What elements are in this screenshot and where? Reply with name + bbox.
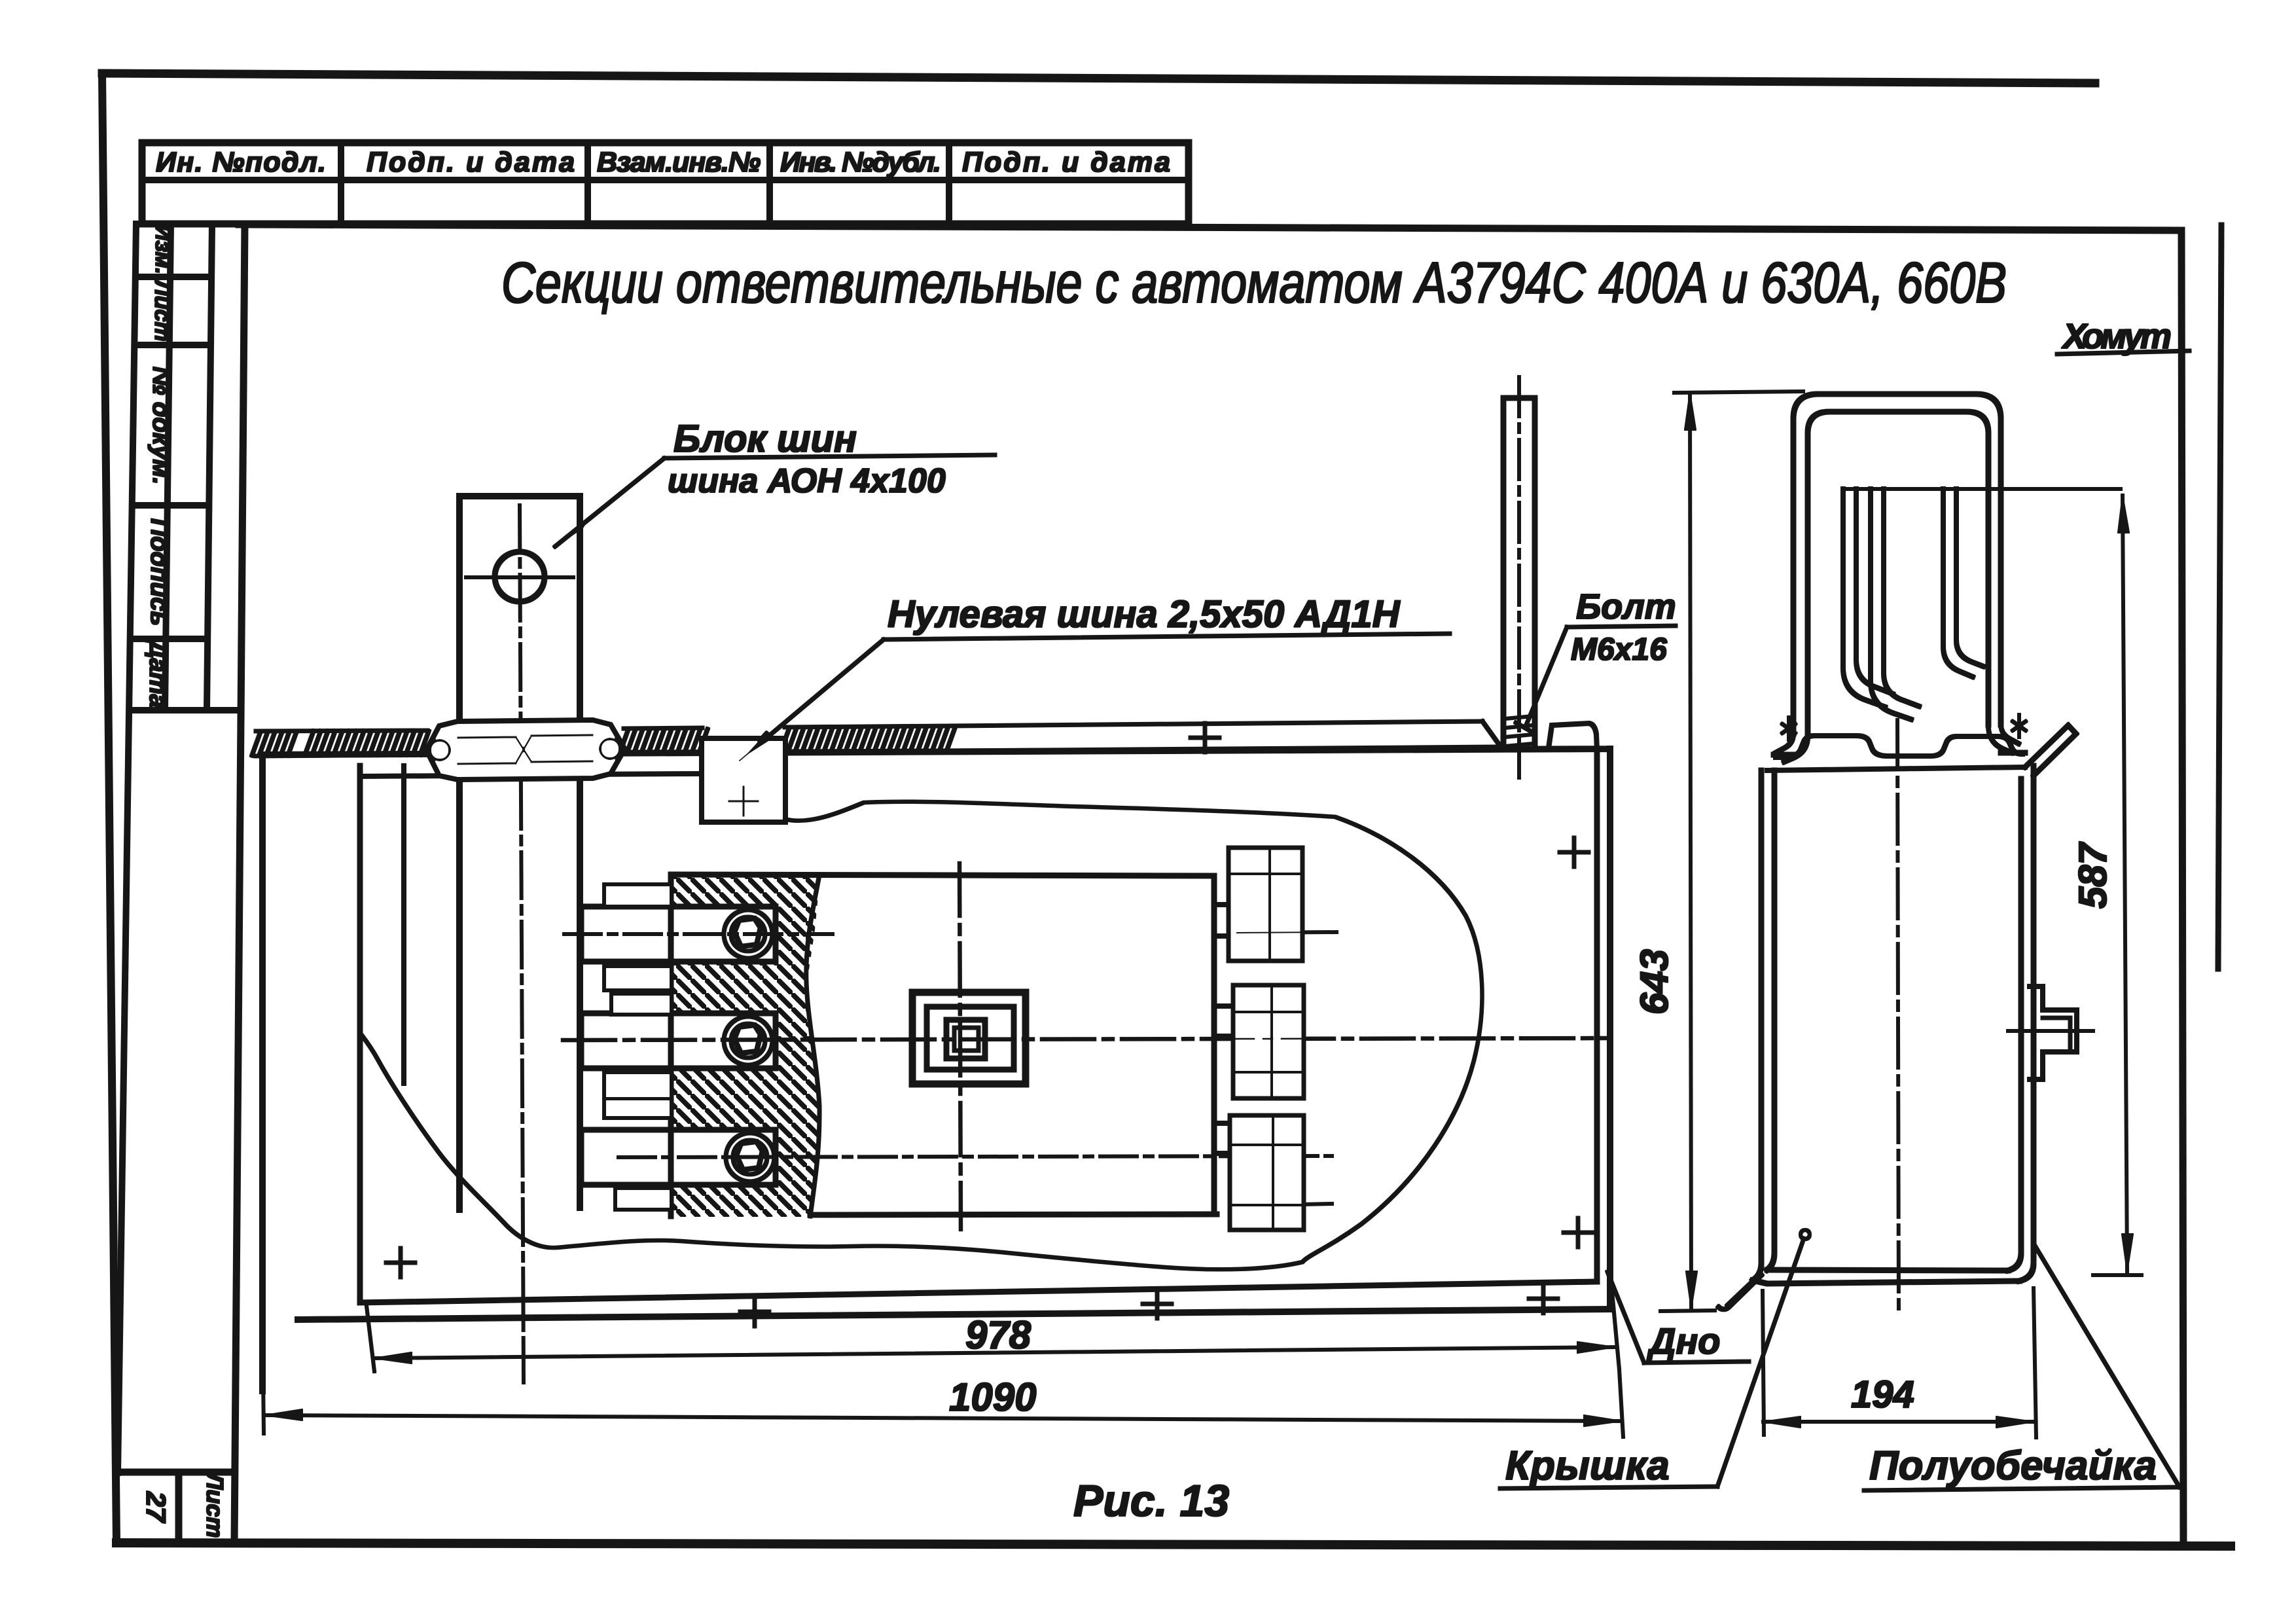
- svg-text:1090: 1090: [949, 1375, 1036, 1419]
- svg-text:Подп. и дата: Подп. и дата: [962, 147, 1170, 178]
- svg-text:Взам.инв.№: Взам.инв.№: [597, 147, 761, 178]
- svg-text:27: 27: [141, 1491, 171, 1523]
- svg-text:Ин. №подл.: Ин. №подл.: [156, 147, 326, 178]
- svg-text:Полуобечайка: Полуобечайка: [1869, 1443, 2157, 1489]
- svg-text:Рис. 13: Рис. 13: [1073, 1476, 1229, 1526]
- svg-text:Болт: Болт: [1576, 587, 1676, 626]
- svg-text:Крышка: Крышка: [1505, 1443, 1670, 1489]
- svg-text:Подпись: Подпись: [145, 518, 173, 626]
- svg-text:Секции ответвительные с авт: Секции ответвительные с автоматом А3794С…: [501, 250, 2007, 315]
- svg-text:Лист: Лист: [150, 278, 175, 341]
- svg-text:643: 643: [1632, 949, 1676, 1015]
- svg-text:Блок шин: Блок шин: [673, 418, 857, 460]
- svg-text:М6х16: М6х16: [1571, 632, 1667, 667]
- svg-text:Подп. и дата: Подп. и дата: [367, 147, 575, 178]
- svg-text:194: 194: [1851, 1373, 1914, 1416]
- svg-text:Дно: Дно: [1647, 1320, 1720, 1362]
- svg-text:Лист: Лист: [202, 1471, 228, 1538]
- svg-text:Дата: Дата: [144, 638, 171, 708]
- svg-text:№ докум.: № докум.: [147, 367, 175, 484]
- svg-text:587: 587: [2071, 841, 2115, 909]
- svg-text:978: 978: [965, 1313, 1031, 1357]
- svg-text:Изм.: Изм.: [151, 225, 175, 274]
- svg-text:шина АОН 4х100: шина АОН 4х100: [668, 462, 946, 500]
- svg-text:Инв. №дубл.: Инв. №дубл.: [780, 147, 941, 178]
- svg-text:Нулевая шина 2,5х50 АД1Н: Нулевая шина 2,5х50 АД1Н: [888, 593, 1401, 636]
